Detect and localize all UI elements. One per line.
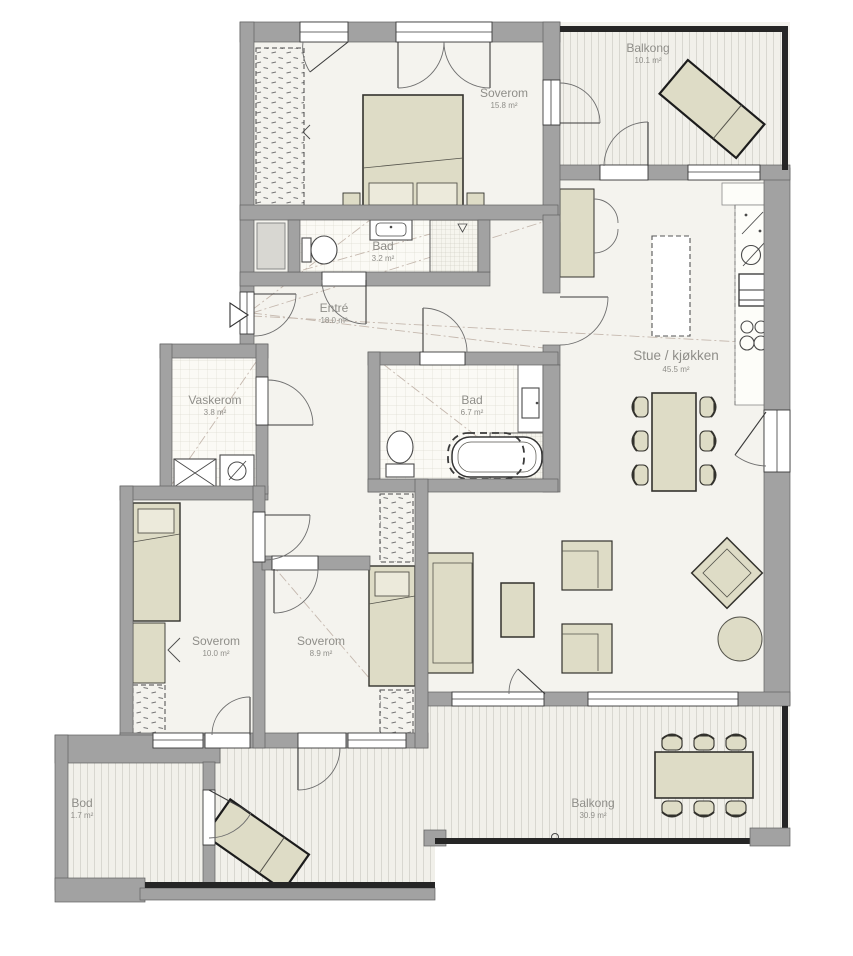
floorplan-canvas: Balkong 10.1 m² Soverom 15.8 m² Bad 3.2 … xyxy=(0,0,853,956)
bed-single xyxy=(133,503,180,621)
wardrobe xyxy=(380,690,413,738)
armchair xyxy=(562,541,612,590)
chair xyxy=(726,801,746,817)
room-label-soverom-2: Soverom 10.0 m² xyxy=(192,634,240,659)
shower xyxy=(430,220,478,272)
room-label-bad-small: Bad 3.2 m² xyxy=(372,239,395,264)
chair xyxy=(633,397,649,417)
balcony-dining-table xyxy=(655,735,753,817)
coffee-table xyxy=(501,583,534,637)
room-label-bod: Bod 1.7 m² xyxy=(71,796,94,821)
chair xyxy=(694,801,714,817)
pillow xyxy=(375,572,409,596)
toilet xyxy=(302,236,337,264)
room-label-vaskerom: Vaskerom 3.8 m² xyxy=(188,393,241,418)
room-label-balkong-bottom: Balkong 30.9 m² xyxy=(571,796,614,821)
laundry-sink xyxy=(220,455,254,487)
chair xyxy=(662,735,682,751)
wardrobe xyxy=(380,494,413,562)
washbasin xyxy=(518,360,543,432)
room-label-bad-large: Bad 6.7 m² xyxy=(461,393,484,418)
tech-closet xyxy=(257,223,285,269)
kitchen-island xyxy=(652,236,690,336)
room-label-soverom-3: Soverom 8.9 m² xyxy=(297,634,345,659)
chair xyxy=(700,465,716,485)
toilet xyxy=(386,431,414,477)
chair xyxy=(700,397,716,417)
chair xyxy=(700,431,716,451)
floorplan-drawing xyxy=(0,0,853,956)
pillow xyxy=(138,509,174,533)
chair xyxy=(633,431,649,451)
pouf xyxy=(718,617,762,661)
chair xyxy=(633,465,649,485)
sink xyxy=(370,220,412,240)
chair xyxy=(726,735,746,751)
washing-machine xyxy=(174,459,216,487)
room-label-stue-kjokken: Stue / kjøkken 45.5 m² xyxy=(633,348,719,375)
dining-table xyxy=(633,393,716,491)
room-label-balkong-top: Balkong 10.1 m² xyxy=(626,41,669,66)
room-label-entre: Entré 18.0 m² xyxy=(320,301,349,326)
bathtub xyxy=(448,433,543,479)
cabinet xyxy=(133,623,165,683)
chair xyxy=(662,801,682,817)
wardrobe xyxy=(133,685,165,737)
sofa xyxy=(423,553,473,673)
room-label-soverom-main: Soverom 15.8 m² xyxy=(480,86,528,111)
bed-single xyxy=(369,566,415,686)
chair xyxy=(694,735,714,751)
pillow xyxy=(369,183,413,205)
armchair xyxy=(562,624,612,673)
oven-icon xyxy=(739,274,766,306)
pillow xyxy=(417,183,457,205)
wardrobe xyxy=(256,48,304,206)
